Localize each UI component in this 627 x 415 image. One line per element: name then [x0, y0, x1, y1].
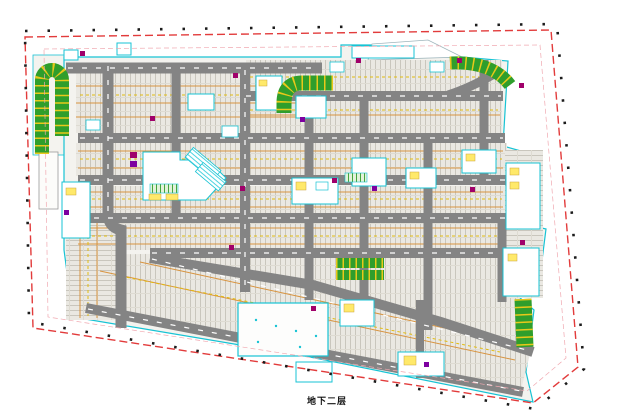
elevator-marker [332, 178, 337, 183]
elevator-marker [150, 116, 155, 121]
elevator-marker [520, 240, 525, 245]
equipment-room [296, 182, 306, 190]
west-annex-strip [39, 152, 58, 209]
floor-label: 地下二层 [307, 394, 347, 407]
equipment-room [508, 254, 517, 261]
column-dot [295, 330, 297, 332]
elevator-marker [229, 245, 234, 250]
core-room [352, 46, 414, 58]
elevator-marker [311, 306, 316, 311]
equipment-room [510, 168, 519, 175]
planted-strip [345, 173, 367, 182]
core-room [188, 94, 214, 110]
equipment-room [466, 154, 475, 161]
elevator-marker [80, 51, 85, 56]
core-room [316, 182, 328, 190]
column-dot [275, 325, 277, 327]
elevator-marker [457, 58, 462, 63]
elevator-marker [130, 161, 137, 167]
elevator-marker [470, 187, 475, 192]
core-room [86, 120, 100, 130]
floor-plan-drawing [0, 0, 627, 415]
equipment-room [410, 172, 419, 179]
core-room [330, 62, 344, 72]
elevator-marker [240, 186, 245, 191]
equipment-room [510, 182, 519, 189]
core-room [117, 43, 131, 55]
elevator-marker [424, 362, 429, 367]
core-room [296, 96, 326, 118]
equipment-room [259, 80, 267, 86]
core-room [462, 150, 496, 173]
elevator-marker [300, 117, 305, 122]
column-dot [299, 346, 301, 348]
cad-sheet: 地下二层 [0, 0, 627, 415]
core-room [64, 50, 78, 60]
column-dot [315, 335, 317, 337]
core-room [222, 126, 238, 137]
equipment-room [404, 356, 416, 365]
elevator-marker [64, 210, 69, 215]
equipment-room [66, 188, 76, 195]
equipment-room [166, 194, 178, 200]
column-dot [255, 319, 257, 321]
elevator-marker [130, 152, 137, 158]
elevator-marker [372, 186, 377, 191]
column-dot [257, 341, 259, 343]
elevator-marker [519, 83, 524, 88]
equipment-room [344, 304, 354, 312]
elevator-marker [233, 73, 238, 78]
elevator-marker [356, 58, 361, 63]
equipment-room [149, 194, 161, 200]
core-room [430, 62, 444, 72]
planted-strip [150, 184, 178, 193]
